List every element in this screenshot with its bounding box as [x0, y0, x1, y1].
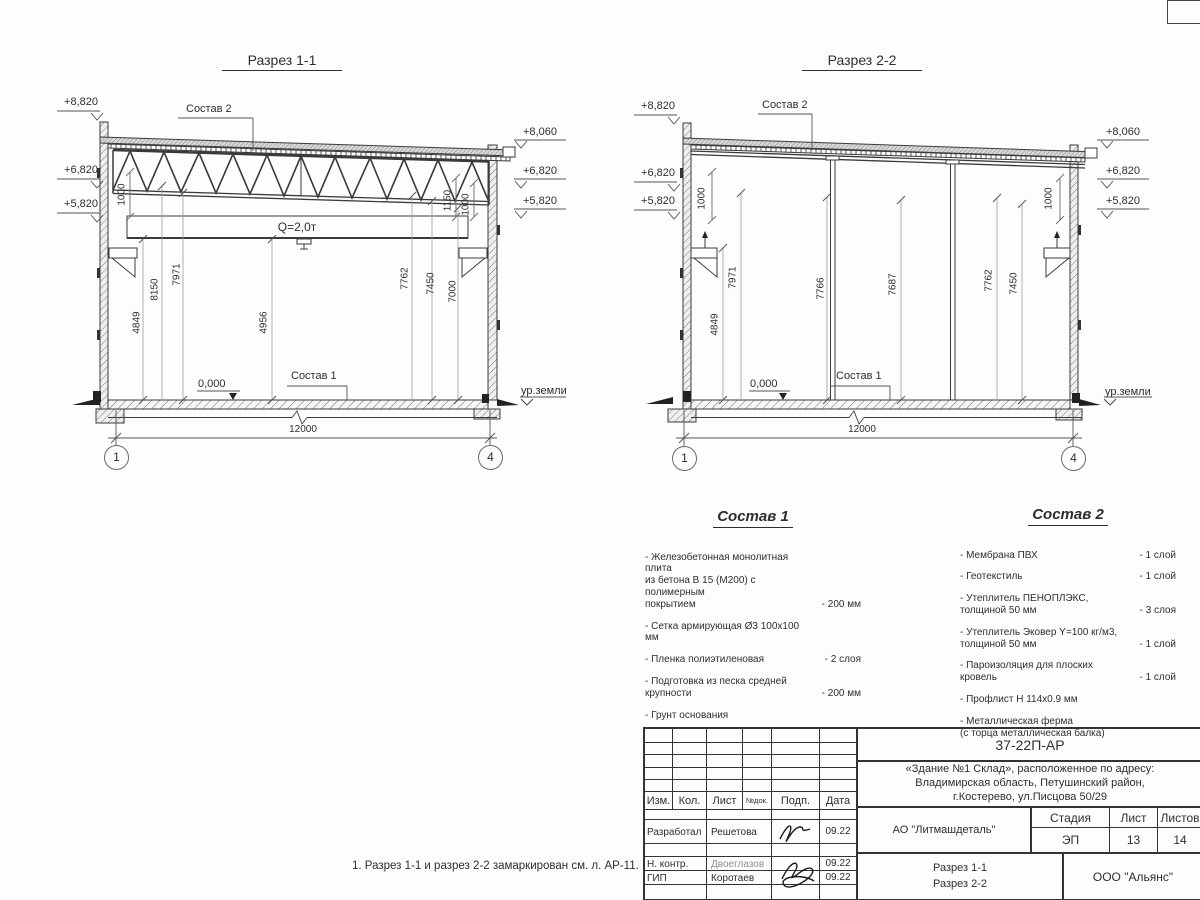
height-dim-label: 8150	[150, 260, 161, 320]
name-dvoeglazov: Двоеглазов	[707, 857, 772, 871]
elevation-label: +6,820	[52, 164, 98, 176]
section-1-1-title: Разрез 1-1	[222, 52, 342, 71]
col-header-podp: Подп.	[772, 792, 820, 810]
date-razrabotal: 09.22	[820, 820, 858, 844]
gap-dim-label: 1000	[1044, 169, 1055, 229]
elevation-label: +5,820	[523, 195, 569, 207]
foundation-right	[1056, 409, 1082, 420]
height-dim-label: 7762	[984, 251, 995, 311]
zero-level-label: 0,000	[198, 378, 226, 390]
elevation-label: +6,820	[629, 167, 675, 179]
roof-composition-list: Состав 2 - Мембрана ПВХ- 1 слой - Геотек…	[960, 506, 1176, 749]
title-block: Изм. Кол. Лист №док. Подп. Дата Разработ…	[643, 727, 1200, 900]
gap-dim-label: 1000	[117, 165, 128, 225]
list-item: - Геотекстиль- 1 слой	[960, 571, 1176, 583]
name-reshetova: Решетова	[707, 820, 772, 844]
col-header-izm: Изм.	[645, 792, 673, 810]
list-item: - Подготовка из песка средней крупности-…	[645, 676, 861, 700]
roof-edge-piece	[503, 147, 515, 157]
gap-dim-label: 1000	[461, 175, 472, 235]
list-item: - Утеплитель Эковер Y=100 кг/м3, толщино…	[960, 627, 1176, 651]
object-description: «Здание №1 Склад», расположенное по адре…	[858, 762, 1200, 808]
date-gip: 09.22	[820, 871, 858, 885]
customer-name: АО "Литмашдеталь"	[858, 808, 1032, 854]
elevation-label: +5,820	[52, 198, 98, 210]
height-dim-label: 7450	[1009, 254, 1020, 314]
list-item: - Утеплитель ПЕНОПЛЭКС, толщиной 50 мм- …	[960, 593, 1176, 617]
floor-composition-callout: Состав 1	[836, 370, 882, 382]
elevation-label: +5,820	[1106, 195, 1152, 207]
roof-composition-callout: Состав 2	[762, 99, 808, 111]
axis-bubble: 1	[104, 445, 129, 470]
elevation-label: +8,820	[629, 100, 675, 112]
role-nkontr: Н. контр.	[645, 857, 707, 871]
height-dim-label: 4956	[259, 293, 270, 353]
ground-level-label: ур.земли	[1105, 386, 1151, 398]
gap-dim-label: 1000	[697, 169, 708, 229]
signature-strokes	[772, 817, 820, 899]
section-1-1-drawing	[57, 111, 566, 446]
elevation-label: +6,820	[523, 165, 569, 177]
height-dim-label: 4849	[710, 295, 721, 355]
sheets-label: Листов	[1158, 808, 1200, 828]
wall-right	[1070, 145, 1078, 400]
floor-composition-list: Состав 1 - Железобетонная монолитная пли…	[645, 508, 861, 731]
col-header-data: Дата	[820, 792, 858, 810]
list-item: - Железобетонная монолитная плита из бет…	[645, 552, 861, 611]
role-gip: ГИП	[645, 871, 707, 885]
height-dim-label: 7450	[426, 254, 437, 314]
wall-left	[683, 123, 691, 410]
section-2-2-title: Разрез 2-2	[802, 52, 922, 71]
corbel-left	[691, 231, 717, 277]
height-dim-label: 7971	[172, 245, 183, 305]
corbel-right	[1044, 231, 1070, 277]
height-dim-label: 7687	[888, 255, 899, 315]
sheet-note: 1. Разрез 1-1 и разрез 2-2 замаркирован …	[352, 860, 639, 872]
foundation-left	[96, 409, 124, 423]
crane-trolley	[297, 239, 311, 249]
sheets-value: 14	[1158, 828, 1200, 854]
list-item: - Мембрана ПВХ- 1 слой	[960, 550, 1176, 562]
date-nkontr: 09.22	[820, 857, 858, 871]
roof-edge-piece	[1085, 148, 1097, 158]
composition-2-heading: Состав 2	[960, 506, 1176, 524]
foundation-left	[668, 409, 696, 422]
height-dim-label: 7766	[816, 259, 827, 319]
name-korotaev: Коротаев	[707, 871, 772, 885]
sheet-corner-frame	[1167, 0, 1200, 24]
elevation-label: +5,820	[629, 195, 675, 207]
stage-label: Стадия	[1032, 808, 1110, 828]
col-header-ndok: №док.	[743, 792, 772, 810]
roof-composition-callout: Состав 2	[186, 103, 232, 115]
axis-bubble: 4	[478, 445, 503, 470]
elevation-label: +8,060	[523, 126, 569, 138]
span-dim-label: 12000	[273, 424, 333, 435]
corbel-right	[459, 248, 487, 277]
col-header-list: Лист	[707, 792, 743, 810]
list-item: - Пароизоляция для плоских кровель- 1 сл…	[960, 660, 1176, 684]
elevation-label: +8,820	[52, 96, 98, 108]
axis-bubble: 1	[672, 446, 697, 471]
elevation-label: +6,820	[1106, 165, 1152, 177]
height-dim-label: 7971	[728, 248, 739, 308]
gap-dims	[126, 168, 478, 221]
gap-dims	[708, 168, 1064, 224]
list-item: - Профлист Н 114х0.9 мм	[960, 694, 1176, 706]
floor-slab	[691, 400, 1070, 409]
wall-left	[100, 122, 108, 410]
ground-level-label: ур.земли	[521, 385, 567, 397]
zero-level-label: 0,000	[750, 378, 778, 390]
list-item: - Грунт основания	[645, 710, 861, 722]
height-dim-label: 7000	[448, 262, 459, 322]
corbel-left	[109, 248, 137, 277]
list-item: - Пленка полиэтиленовая- 2 слоя	[645, 654, 861, 666]
height-dim-label: 7762	[400, 249, 411, 309]
list-item: - Сетка армирующая Ø3 100х100 мм	[645, 621, 861, 645]
sheet-label: Лист	[1110, 808, 1158, 828]
floor-composition-callout: Состав 1	[291, 370, 337, 382]
drawing-sheet: Разрез 1-1 +8,820 +6,820 +5,820 +8,060 +…	[0, 0, 1200, 900]
sheet-content: Разрез 1-1 Разрез 2-2	[858, 854, 1064, 899]
span-dim-label: 12000	[832, 424, 892, 435]
elevation-label: +8,060	[1106, 126, 1152, 138]
height-dim-label: 4849	[132, 293, 143, 353]
height-witness-lines	[723, 193, 1022, 400]
role-razrabotal: Разработал	[645, 820, 707, 844]
organization-name: ООО "Альянс"	[1064, 854, 1200, 899]
crane-capacity-label: Q=2,0т	[267, 220, 327, 234]
col-header-kol: Кол.	[673, 792, 707, 810]
axis-bubble: 4	[1061, 446, 1086, 471]
document-number: 37-22П-АР	[858, 729, 1200, 762]
gap-dim-label: 1150	[443, 171, 454, 231]
stage-value: ЭП	[1032, 828, 1110, 854]
sheet-value: 13	[1110, 828, 1158, 854]
composition-1-heading: Состав 1	[645, 508, 861, 526]
